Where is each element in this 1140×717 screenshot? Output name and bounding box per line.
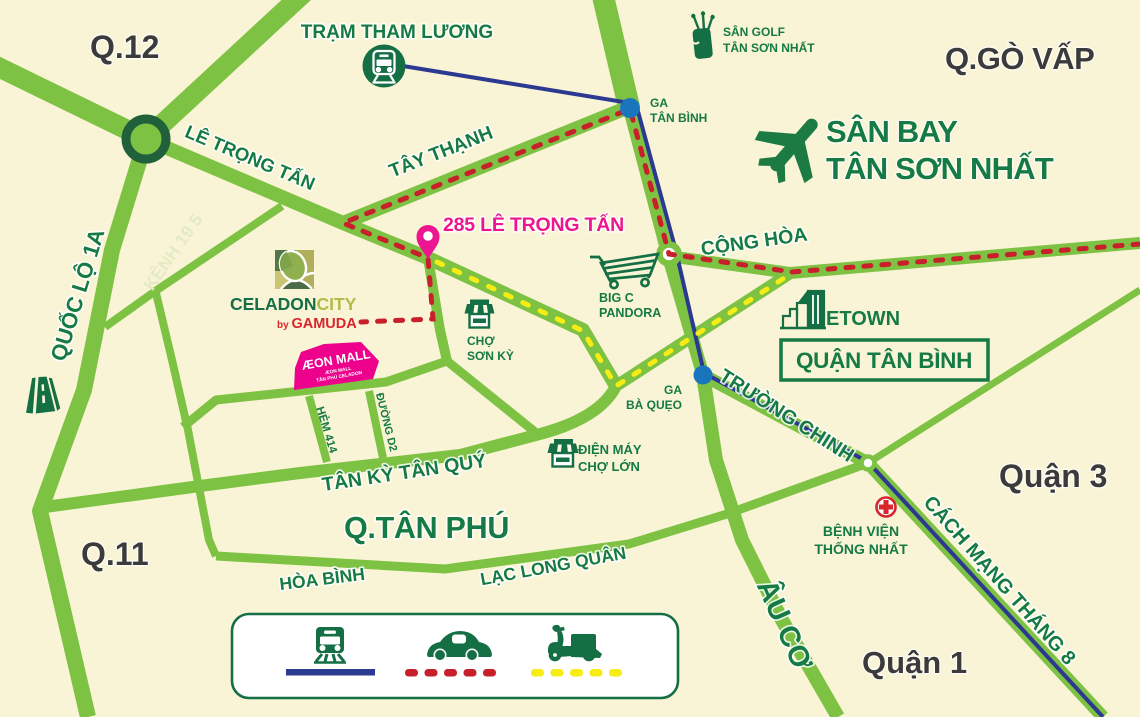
- svg-text:SƠN KỲ: SƠN KỲ: [467, 348, 514, 363]
- svg-text:CELADONCITY: CELADONCITY: [230, 294, 357, 314]
- svg-text:BÀ QUẸO: BÀ QUẸO: [626, 397, 682, 412]
- svg-text:ETOWN: ETOWN: [826, 308, 900, 330]
- svg-text:GA: GA: [650, 96, 668, 110]
- svg-text:Q.GÒ VẤP: Q.GÒ VẤP: [945, 40, 1094, 76]
- svg-text:SÂN GOLF: SÂN GOLF: [723, 24, 785, 39]
- svg-text:TÂN SƠN NHẤT: TÂN SƠN NHẤT: [723, 40, 815, 55]
- svg-text:Quận 1: Quận 1: [862, 645, 967, 680]
- svg-text:Quận 3: Quận 3: [999, 458, 1107, 494]
- svg-text:Q.TÂN PHÚ: Q.TÂN PHÚ: [344, 509, 509, 545]
- svg-text:GA: GA: [664, 383, 682, 397]
- svg-text:BỆNH VIỆN: BỆNH VIỆN: [823, 522, 899, 539]
- svg-text:Q.11: Q.11: [81, 536, 149, 572]
- svg-text:TÂN SƠN NHẤT: TÂN SƠN NHẤT: [826, 150, 1054, 186]
- svg-text:CHỢ LỚN: CHỢ LỚN: [578, 459, 640, 474]
- svg-text:BIG C: BIG C: [599, 291, 634, 305]
- svg-text:ĐIỆN MÁY: ĐIỆN MÁY: [578, 442, 642, 457]
- svg-text:SÂN BAY: SÂN BAY: [826, 113, 958, 149]
- svg-text:THỐNG NHẤT: THỐNG NHẤT: [814, 540, 908, 557]
- svg-text:TÂN BÌNH: TÂN BÌNH: [650, 110, 707, 125]
- svg-text:CHỢ: CHỢ: [467, 334, 495, 348]
- svg-text:TRẠM THAM LƯƠNG: TRẠM THAM LƯƠNG: [301, 22, 493, 43]
- svg-text:PANDORA: PANDORA: [599, 306, 661, 320]
- svg-text:Q.12: Q.12: [90, 29, 159, 65]
- svg-text:QUẬN TÂN BÌNH: QUẬN TÂN BÌNH: [796, 348, 972, 373]
- svg-text:285 LÊ TRỌNG TẤN: 285 LÊ TRỌNG TẤN: [443, 212, 624, 236]
